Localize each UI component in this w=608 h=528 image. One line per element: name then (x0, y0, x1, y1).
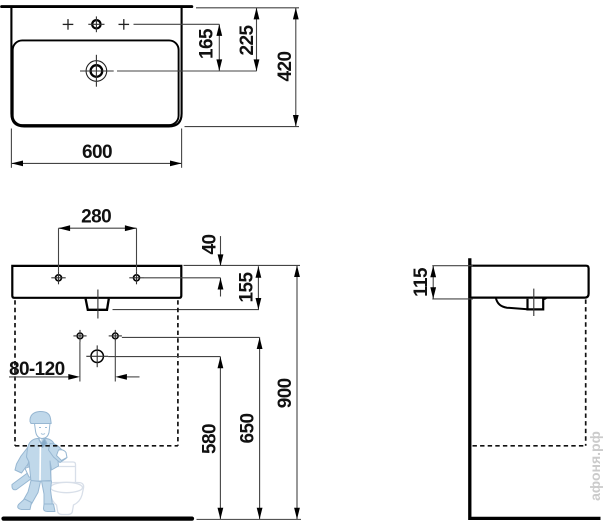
svg-text:420: 420 (275, 52, 296, 82)
svg-text:115: 115 (411, 267, 432, 297)
svg-text:155: 155 (236, 272, 257, 303)
svg-text:280: 280 (81, 207, 111, 228)
svg-text:165: 165 (197, 28, 218, 59)
svg-text:580: 580 (200, 424, 221, 454)
svg-text:80-120: 80-120 (9, 359, 65, 380)
svg-text:900: 900 (275, 378, 296, 408)
svg-text:225: 225 (237, 25, 258, 56)
svg-text:афоня.рф: афоня.рф (587, 431, 603, 501)
svg-text:600: 600 (82, 142, 112, 163)
svg-text:650: 650 (238, 414, 259, 444)
svg-text:40: 40 (199, 235, 220, 255)
